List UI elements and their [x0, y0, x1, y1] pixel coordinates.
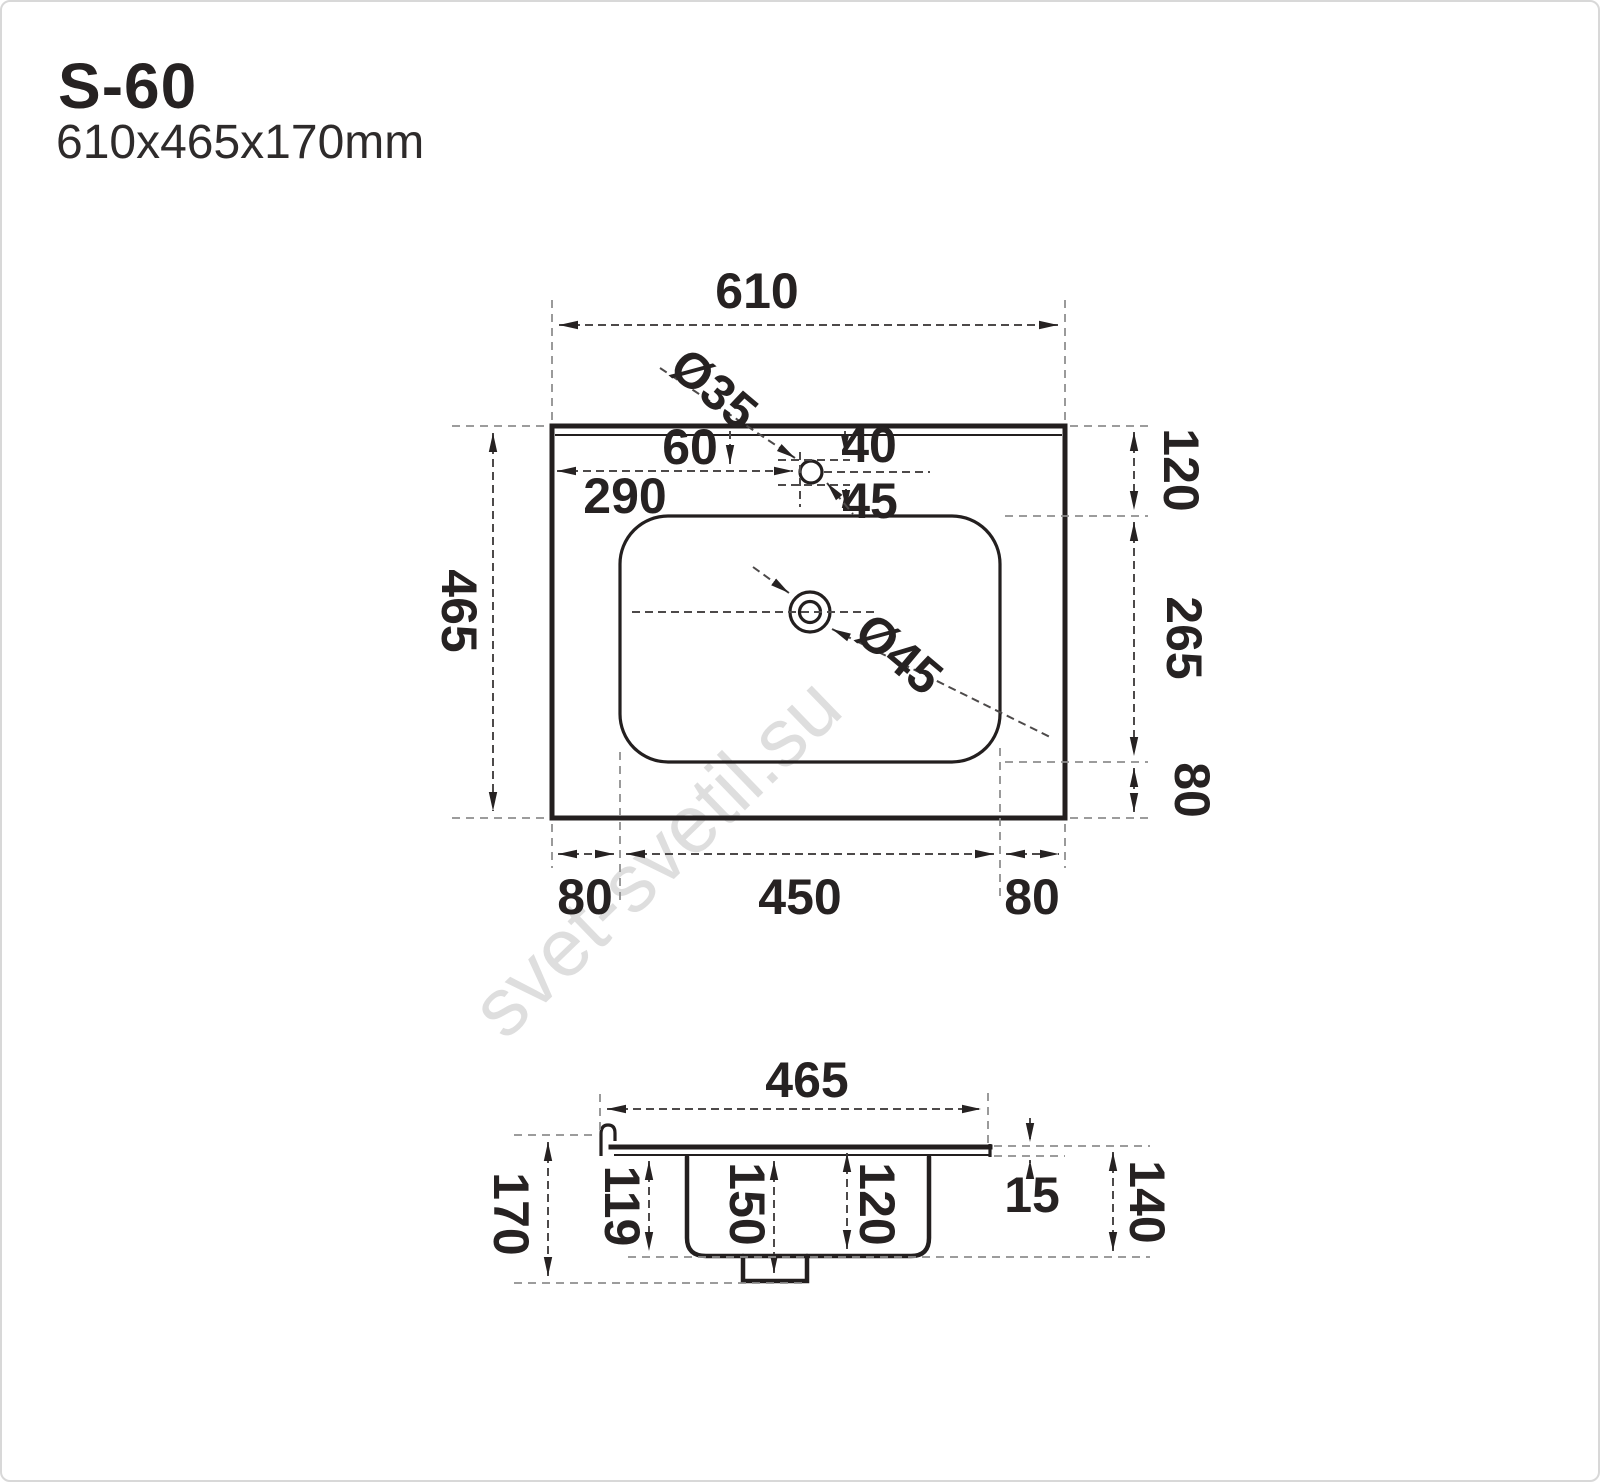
dim-total-height-label: 170 [483, 1172, 539, 1255]
dim-top-height: 465 [431, 426, 546, 818]
dim-right-middle-label: 265 [1156, 596, 1212, 679]
dim-faucet-from-left-label: 290 [583, 468, 666, 524]
dim-right-top-label: 120 [1153, 428, 1209, 511]
dim-bottom-center-label: 450 [758, 869, 841, 925]
watermark: svet-svetil.su [454, 660, 858, 1055]
technical-drawing-page: svet-svetil.su S-60 610x465x170mm 610 [0, 0, 1600, 1482]
watermark-text: svet-svetil.su [454, 660, 858, 1055]
dim-bowl-height-label: 140 [1119, 1160, 1175, 1243]
dim-hole-bottom-offset-label: 45 [842, 473, 898, 529]
section-view: 465 170 119 150 120 [483, 1052, 1175, 1283]
dim-right-side: 120 265 80 [1005, 426, 1220, 818]
dim-top-height-label: 465 [431, 569, 487, 652]
dim-outer-depth: 119 [594, 1161, 650, 1251]
model-title: S-60 [58, 50, 197, 122]
dim-top-width-label: 610 [715, 263, 798, 319]
dim-bottom-right-label: 80 [1004, 869, 1060, 925]
dim-drain-depth-label: 150 [719, 1162, 775, 1245]
dim-faucet-position: 290 60 40 45 [557, 417, 930, 529]
dim-section-width: 465 [600, 1052, 988, 1143]
dim-inner-depth-label: 120 [849, 1162, 905, 1245]
dim-top-width: 610 [552, 263, 1065, 420]
model-size: 610x465x170mm [56, 116, 424, 169]
dim-slab-thickness-label: 15 [1004, 1167, 1060, 1223]
faucet-hole [800, 461, 822, 483]
dim-bottom-left-label: 80 [557, 869, 613, 925]
front-lip [601, 1125, 615, 1156]
dim-inner-depth: 120 [847, 1153, 905, 1249]
dim-right-bottom-label: 80 [1164, 762, 1220, 818]
top-view: 610 465 290 60 40 45 [431, 263, 1220, 925]
dim-outer-depth-label: 119 [594, 1166, 650, 1247]
sink-drawing: svet-svetil.su S-60 610x465x170mm 610 [0, 0, 1600, 1482]
drain-diameter-label: Ø45 [845, 602, 953, 706]
dim-hole-top-offset-label: 40 [841, 417, 897, 473]
dim-bowl-height: 140 [1113, 1152, 1175, 1251]
header: S-60 610x465x170mm [56, 50, 424, 169]
dim-faucet-from-top-label: 60 [662, 419, 718, 475]
dim-section-width-label: 465 [765, 1052, 848, 1108]
